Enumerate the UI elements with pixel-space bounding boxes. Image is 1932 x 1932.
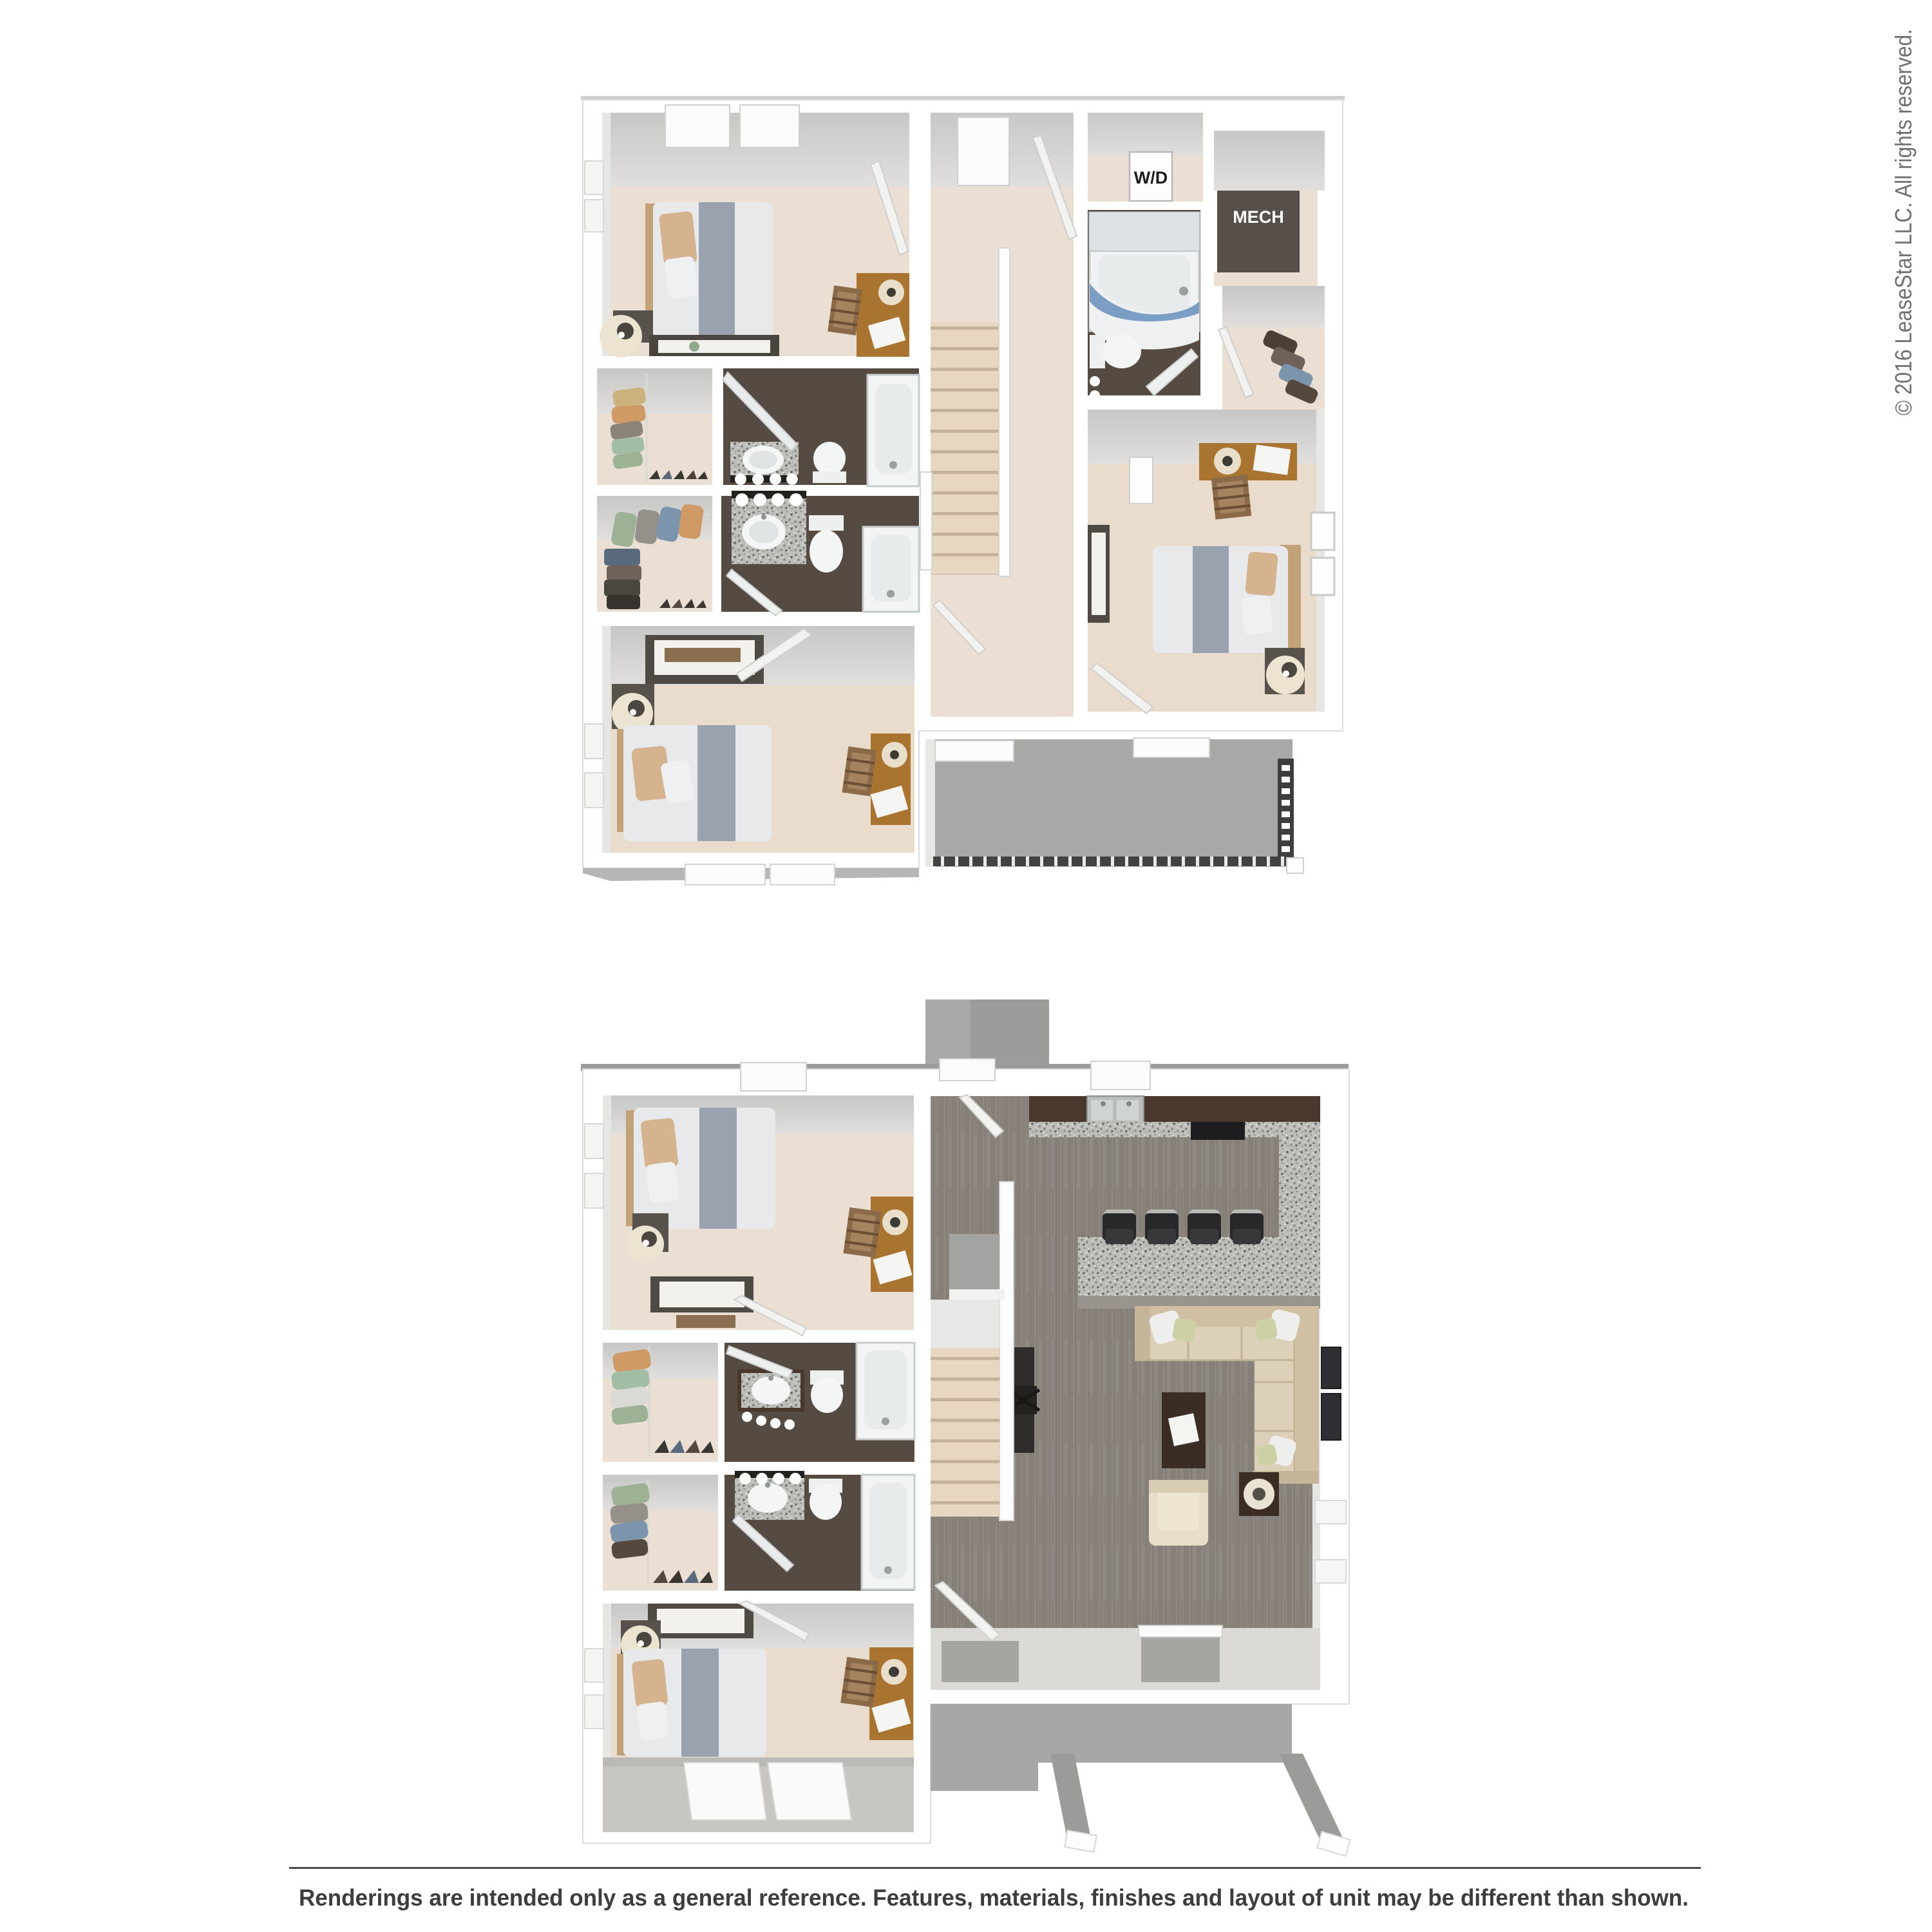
svg-text:W/D: W/D bbox=[1134, 168, 1168, 187]
svg-text:© 2016 LeaseStar LLC. All righ: © 2016 LeaseStar LLC. All rights reserve… bbox=[1890, 29, 1917, 415]
svg-text:Renderings are intended only a: Renderings are intended only as a genera… bbox=[299, 1884, 1689, 1911]
svg-text:MECH: MECH bbox=[1233, 207, 1284, 227]
